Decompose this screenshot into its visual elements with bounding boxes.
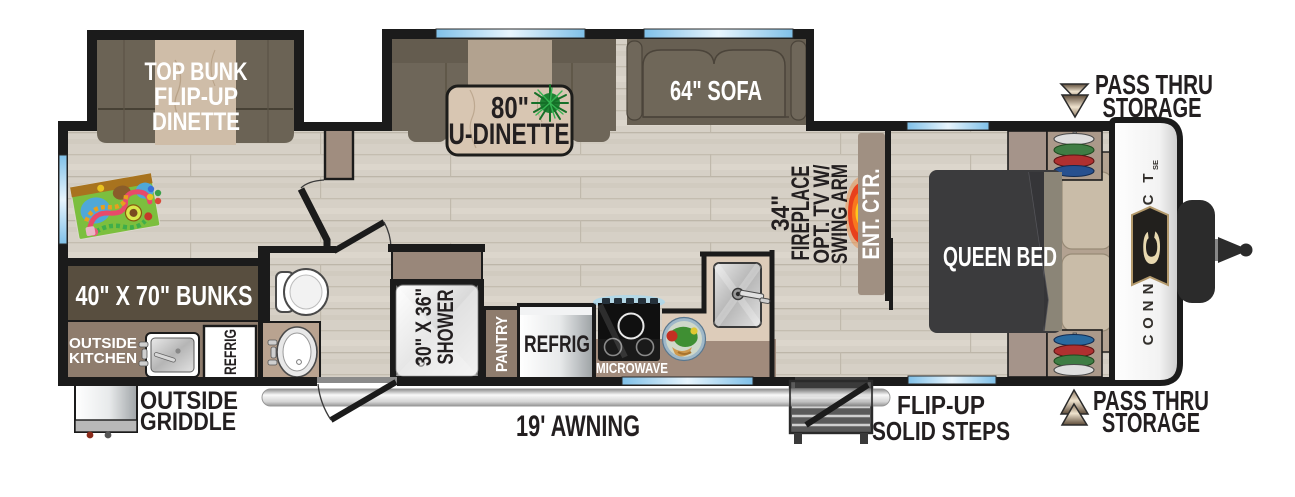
- svg-text:STORAGE: STORAGE: [1103, 92, 1202, 123]
- svg-text:STORAGE: STORAGE: [1102, 407, 1200, 438]
- svg-text:FLIP-UP: FLIP-UP: [154, 83, 238, 111]
- svg-text:MICROWAVE: MICROWAVE: [596, 360, 668, 377]
- svg-text:U-DINETTE: U-DINETTE: [449, 118, 570, 151]
- svg-text:C: C: [1139, 230, 1166, 266]
- svg-text:C: C: [1140, 194, 1157, 205]
- svg-text:T: T: [1140, 173, 1157, 182]
- svg-text:REFRIG: REFRIG: [221, 329, 240, 375]
- svg-text:TOP BUNK: TOP BUNK: [145, 58, 248, 86]
- svg-text:GRIDDLE: GRIDDLE: [140, 408, 236, 436]
- svg-text:64" SOFA: 64" SOFA: [670, 75, 762, 106]
- svg-text:ENT. CTR.: ENT. CTR.: [858, 169, 885, 260]
- svg-text:C: C: [1140, 334, 1157, 345]
- svg-text:SWING ARM: SWING ARM: [827, 164, 852, 264]
- svg-text:19' AWNING: 19' AWNING: [516, 410, 640, 443]
- svg-text:REFRIG: REFRIG: [524, 331, 590, 358]
- svg-text:DINETTE: DINETTE: [152, 108, 240, 136]
- svg-text:N: N: [1140, 301, 1157, 312]
- svg-text:SOLID STEPS: SOLID STEPS: [872, 416, 1010, 446]
- svg-text:PANTRY: PANTRY: [494, 316, 511, 372]
- svg-text:SE: SE: [1151, 160, 1160, 170]
- svg-text:N: N: [1140, 284, 1157, 295]
- svg-text:40" X 70" BUNKS: 40" X 70" BUNKS: [76, 280, 253, 311]
- svg-text:SHOWER: SHOWER: [433, 289, 458, 364]
- svg-text:QUEEN BED: QUEEN BED: [943, 241, 1057, 272]
- svg-text:KITCHEN: KITCHEN: [69, 350, 137, 367]
- svg-text:O: O: [1140, 317, 1157, 329]
